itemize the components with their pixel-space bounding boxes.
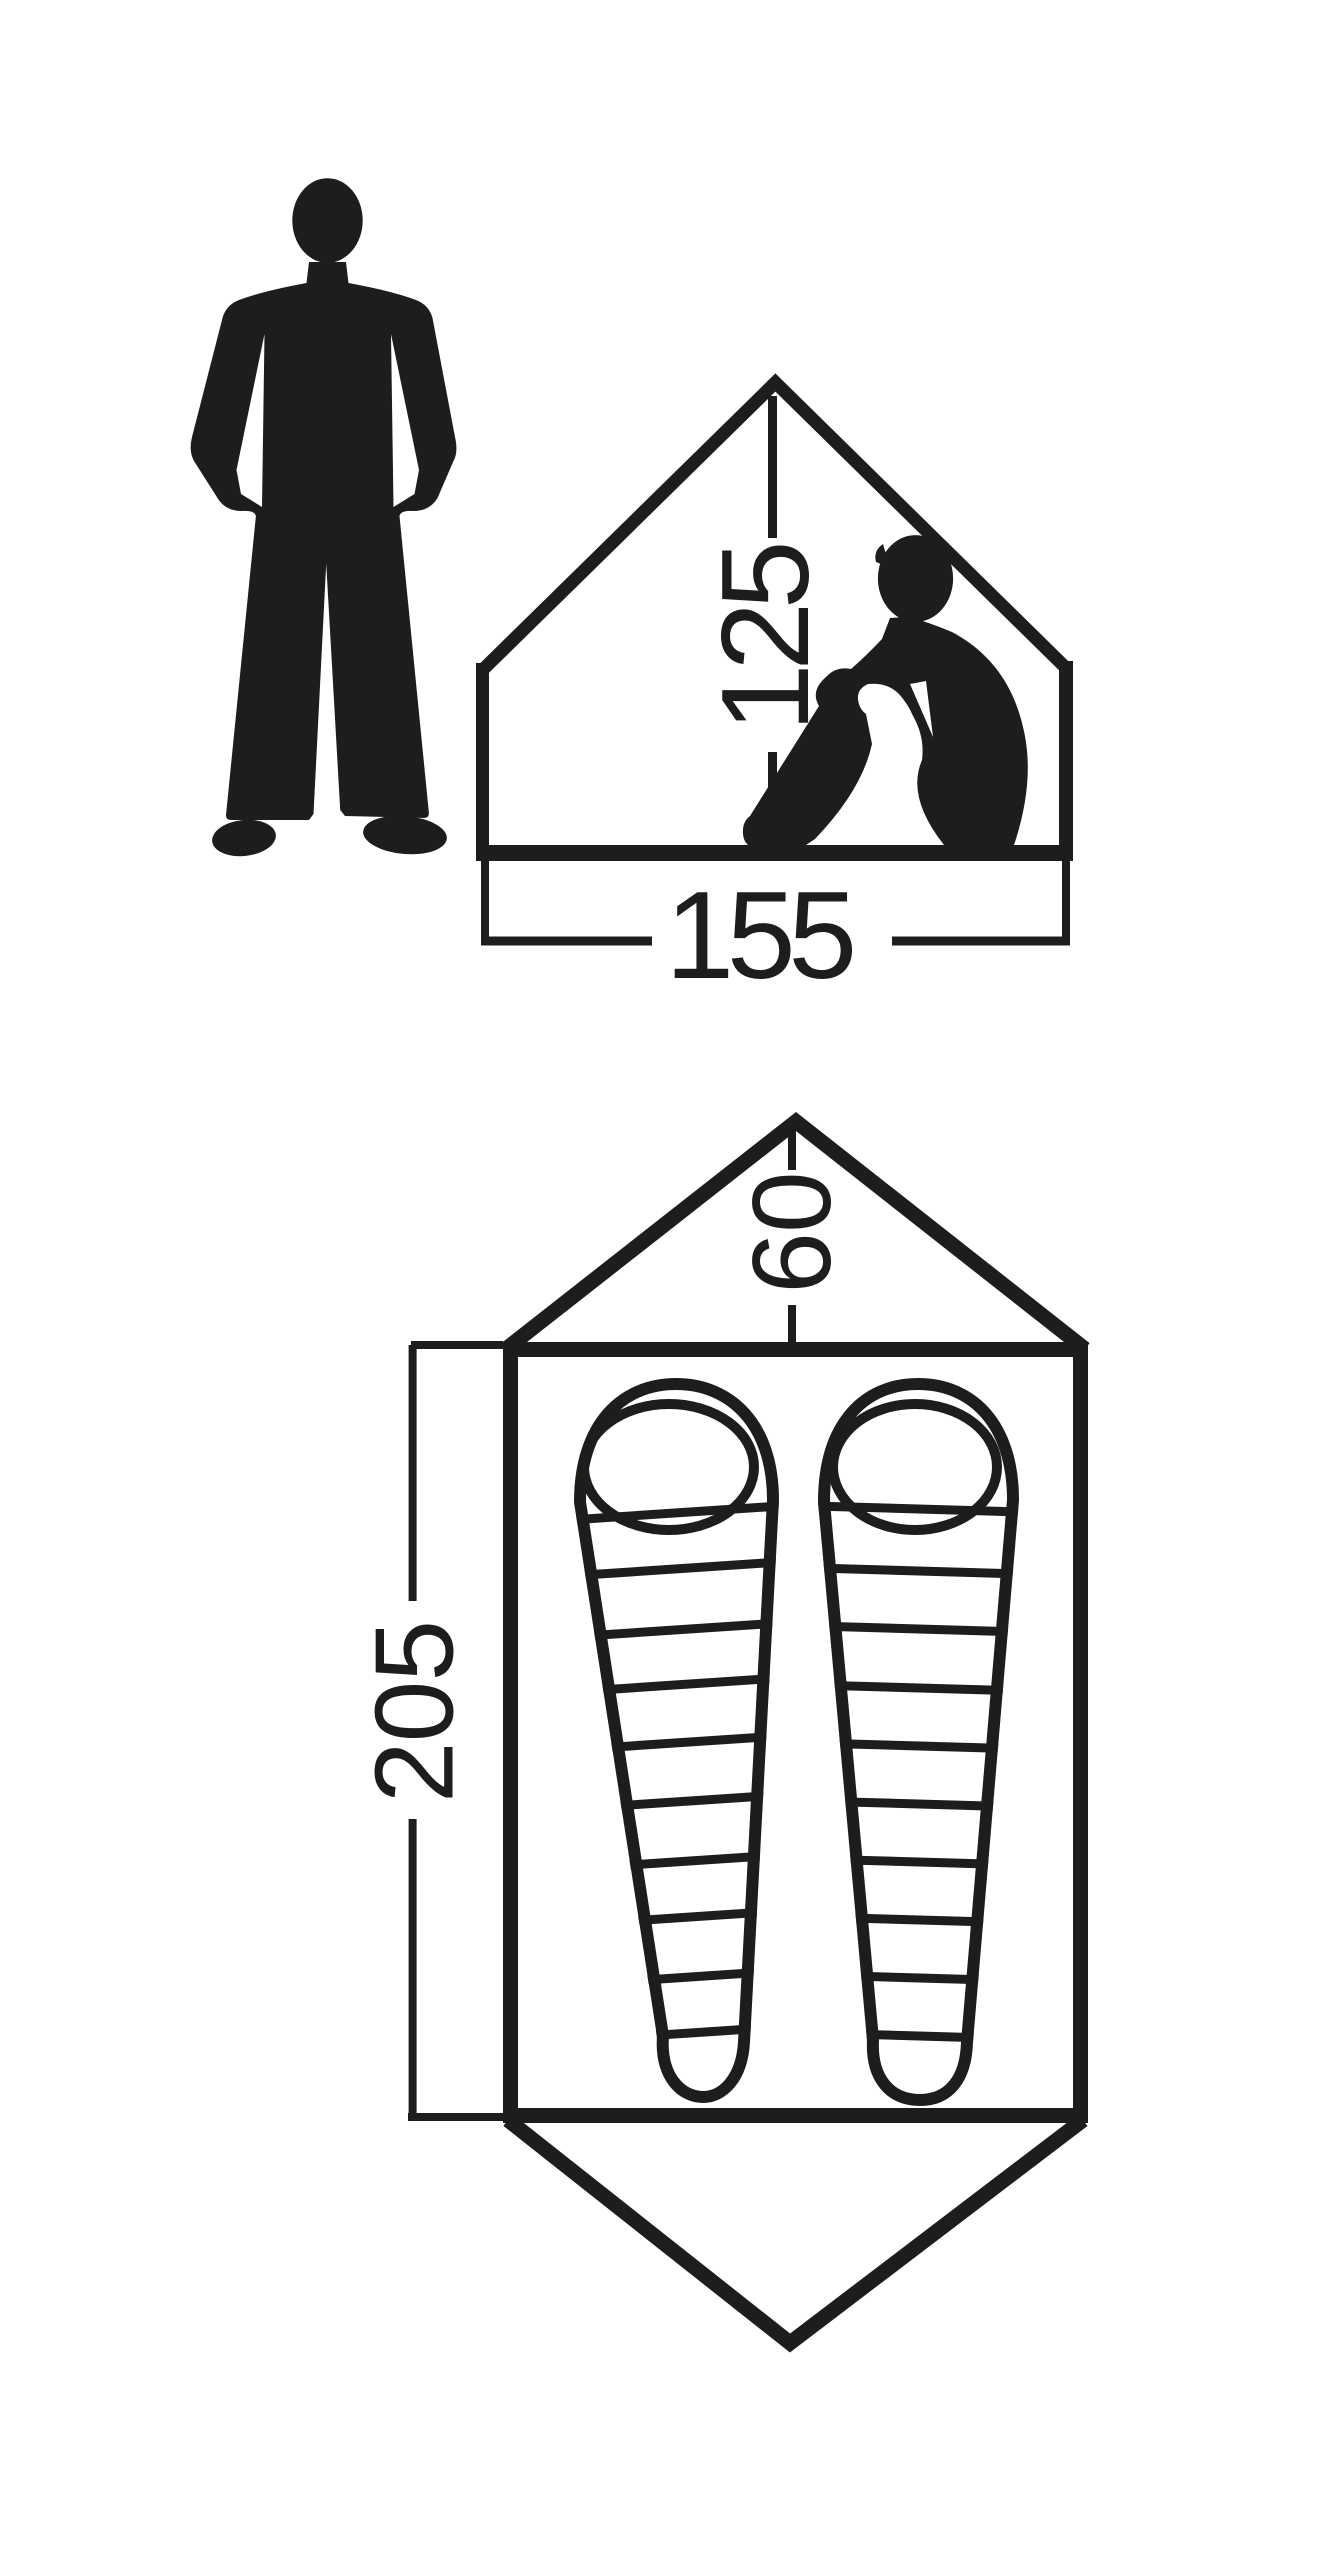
svg-text:205: 205 — [353, 1621, 477, 1803]
svg-text:155: 155 — [665, 867, 852, 1005]
svg-text:60: 60 — [730, 1172, 854, 1293]
svg-text:125: 125 — [697, 545, 835, 732]
